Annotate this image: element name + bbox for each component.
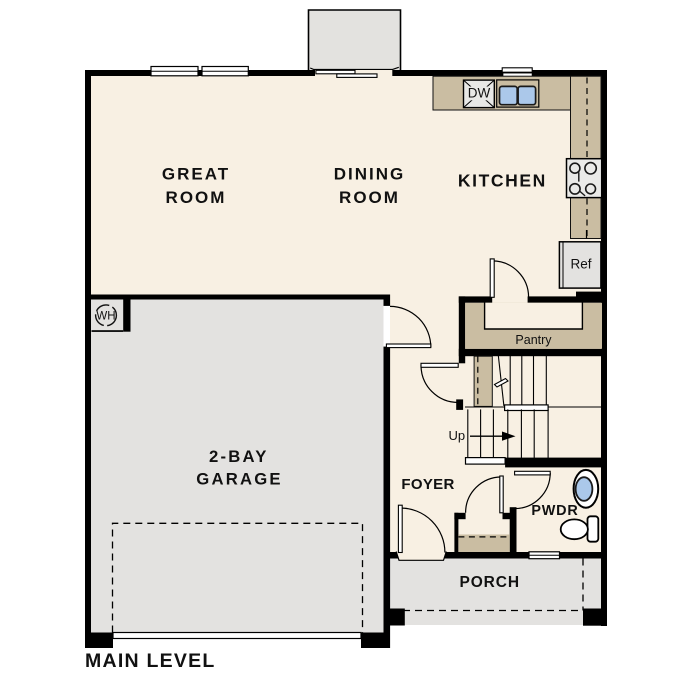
svg-text:Ref: Ref xyxy=(570,257,591,272)
svg-text:FOYER: FOYER xyxy=(401,476,454,493)
svg-text:GARAGE: GARAGE xyxy=(196,470,282,489)
svg-text:GREAT: GREAT xyxy=(162,165,230,184)
svg-text:DINING: DINING xyxy=(334,165,406,184)
svg-text:PORCH: PORCH xyxy=(459,574,519,591)
svg-text:Up: Up xyxy=(449,428,466,443)
svg-text:WH: WH xyxy=(96,311,115,323)
svg-text:ROOM: ROOM xyxy=(339,188,400,207)
svg-text:Pantry: Pantry xyxy=(515,333,552,347)
svg-text:ROOM: ROOM xyxy=(166,188,227,207)
svg-text:DW: DW xyxy=(468,86,491,101)
svg-text:PWDR: PWDR xyxy=(531,503,578,519)
svg-text:2-BAY: 2-BAY xyxy=(209,447,269,466)
svg-text:MAIN LEVEL: MAIN LEVEL xyxy=(85,650,216,672)
svg-text:KITCHEN: KITCHEN xyxy=(458,171,547,191)
